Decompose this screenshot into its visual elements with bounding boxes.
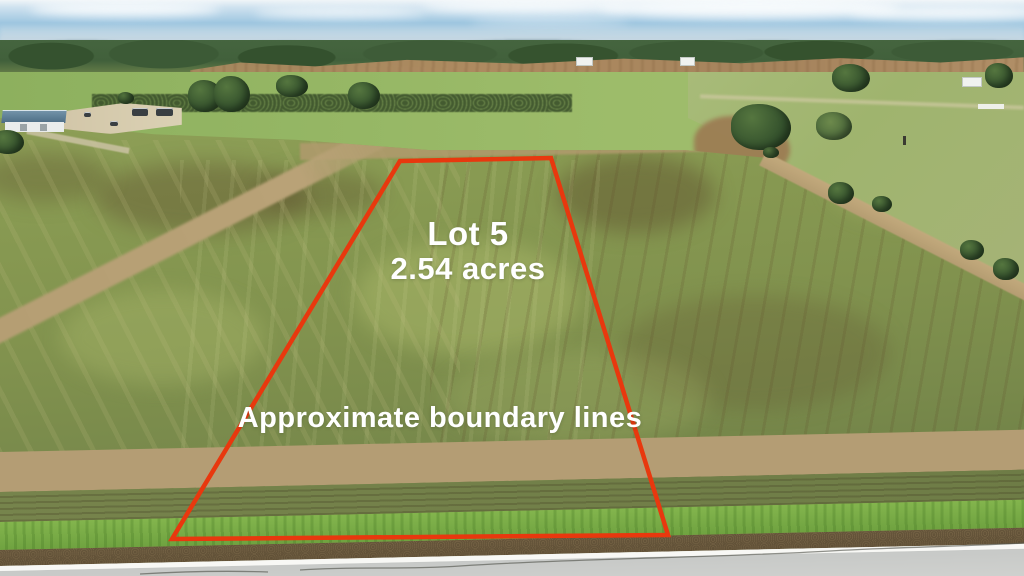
lot-name-label: Lot 5 (318, 216, 618, 252)
road-verge (0, 0, 1024, 576)
boundary-disclaimer-label: Approximate boundary lines (220, 402, 660, 435)
aerial-photo: Lot 5 2.54 acres Approximate boundary li… (0, 0, 1024, 576)
lot-size-label: 2.54 acres (318, 252, 618, 286)
